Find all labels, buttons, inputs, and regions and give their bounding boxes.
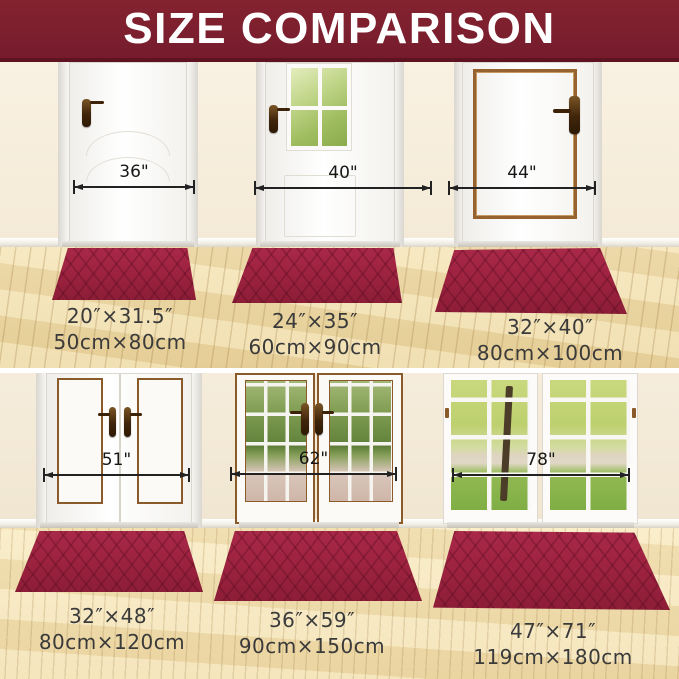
measure-arrow-44: 44" [448,180,596,196]
arrow-head-right-icon [180,472,189,478]
measure-value: 40" [328,163,357,183]
door-handle [109,407,116,437]
arrow-head-left-icon [74,184,83,190]
arrow-head-right-icon [422,185,431,191]
door-threshold [239,522,399,528]
size-cm: 50cm×80cm [15,329,225,355]
arrow-line [449,187,595,189]
arrow-head-right-icon [387,471,396,477]
size-label: 20″×31.5″ 50cm×80cm [15,303,225,355]
arrow-head-right-icon [620,472,629,478]
size-inches: 36″×59″ [207,607,417,633]
size-label: 32″×48″ 80cm×120cm [7,603,217,655]
window-muntin [290,106,348,110]
page-title: SIZE COMPARISON [123,7,555,51]
door-hinge [632,408,636,418]
size-cm: 80cm×100cm [445,340,655,366]
size-label: 24″×35″ 60cm×90cm [210,308,420,360]
patio-door-right [542,373,638,524]
measure-arrow-36: 36" [73,179,195,195]
door-handle-lever [130,413,142,416]
size-inches: 32″×40″ [445,314,655,340]
door-hinge [445,408,449,418]
door-handle-lever [322,411,334,414]
doormat-medium [232,248,402,303]
arrow-head-right-icon [586,185,595,191]
size-comparison-infographic: SIZE COMPARISON [0,0,679,679]
door-glass [451,380,530,510]
glass-muntins [330,381,392,501]
doormat-small [52,248,196,300]
door-threshold [62,241,194,247]
arrow-line [44,474,189,476]
arrow-line [255,187,431,189]
measure-arrow-40: 40" [254,180,432,196]
door-handle-lever [98,413,110,416]
door-arch-panel [86,131,170,156]
door-threshold [458,241,598,247]
doormat-large [435,248,627,314]
arrow-head-left-icon [449,185,458,191]
measure-value: 44" [507,163,536,183]
arrow-head-left-icon [44,472,53,478]
door-panel-molding [57,378,103,504]
door-meeting-stile [119,374,121,523]
patio-door-left [443,373,538,524]
door-slab [69,62,187,243]
door-handle-lever [553,109,571,113]
door-slab [46,373,192,524]
door-window [286,63,352,151]
glass-muntins [246,381,306,501]
size-cm: 60cm×90cm [210,334,420,360]
french-door-right [317,373,403,524]
measure-value: 78" [526,450,555,470]
size-label: 32″×40″ 80cm×100cm [445,314,655,366]
size-label: 36″×59″ 90cm×150cm [207,607,417,659]
arrow-head-right-icon [185,184,194,190]
measure-arrow-51: 51" [43,467,190,483]
door-handle [269,105,278,133]
doormat-runner [433,531,670,610]
glass-muntins [451,380,530,510]
measure-value: 51" [102,450,131,470]
door-panel-molding [137,378,183,504]
door-handle [569,96,580,134]
measure-value: 62" [299,449,328,469]
door-single-panel [58,62,198,247]
banner: SIZE COMPARISON [0,0,679,62]
door-slab [265,62,395,243]
door-half-glass [256,62,404,247]
measure-value: 36" [119,162,148,182]
door-threshold [260,241,400,247]
measure-arrow-62: 62" [230,466,397,482]
door-handle [301,403,309,435]
door-handle [82,99,91,127]
door-slab [462,62,594,243]
row-large-mats: 51" 62" 78" 32″×48″ [0,373,679,679]
door-glass [550,380,630,510]
size-inches: 24″×35″ [210,308,420,334]
door-threshold [40,522,198,528]
arrow-line [453,474,629,476]
arrow-line [74,186,194,188]
row-small-mats: 36" 40" 44" 20″×31.5 [0,62,679,368]
size-inches: 32″×48″ [7,603,217,629]
door-threshold [447,522,634,528]
door-handle-lever [90,101,104,104]
measure-arrow-78: 78" [452,467,630,483]
size-cm: 119cm×180cm [448,644,658,670]
size-cm: 90cm×150cm [207,633,417,659]
size-inches: 20″×31.5″ [15,303,225,329]
arrow-head-left-icon [255,185,264,191]
door-glass [329,380,393,502]
door-handle-lever [277,108,290,111]
size-cm: 80cm×120cm [7,629,217,655]
door-handle [315,403,323,435]
arrow-line [231,473,396,475]
door-copper-trim [454,62,602,247]
size-label: 47″×71″ 119cm×180cm [448,618,658,670]
door-handle [124,407,131,437]
size-inches: 47″×71″ [448,618,658,644]
glass-muntins [550,380,630,510]
door-handle-lever [290,411,302,414]
arrow-head-left-icon [231,471,240,477]
doormat-xl [15,531,203,592]
doormat-xxl [214,531,422,601]
door-glass [245,380,307,502]
arrow-head-left-icon [453,472,462,478]
door-copper-molding [473,69,577,219]
